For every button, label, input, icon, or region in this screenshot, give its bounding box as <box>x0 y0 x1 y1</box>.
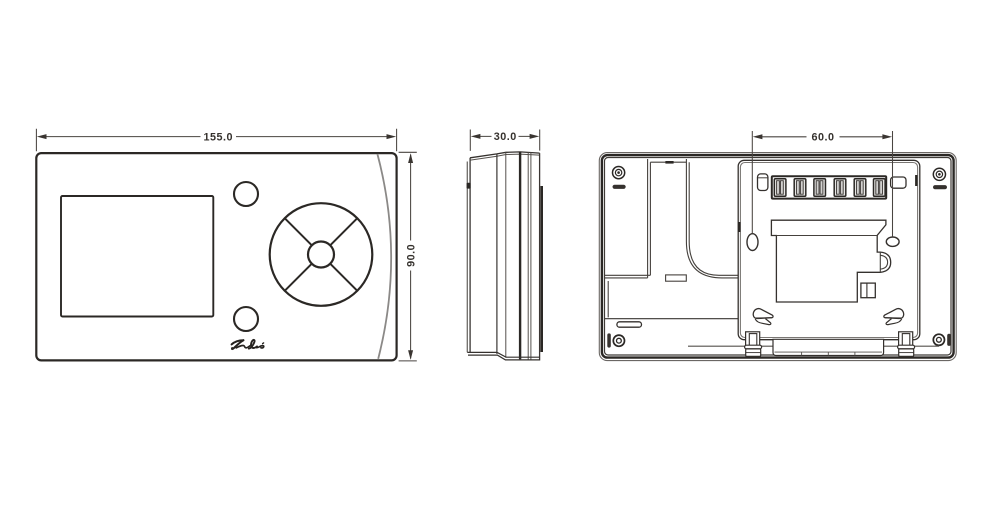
svg-text:155.0: 155.0 <box>204 131 234 143</box>
svg-text:90.0: 90.0 <box>405 244 417 267</box>
svg-text:30.0: 30.0 <box>494 131 517 143</box>
svg-text:60.0: 60.0 <box>811 132 834 144</box>
